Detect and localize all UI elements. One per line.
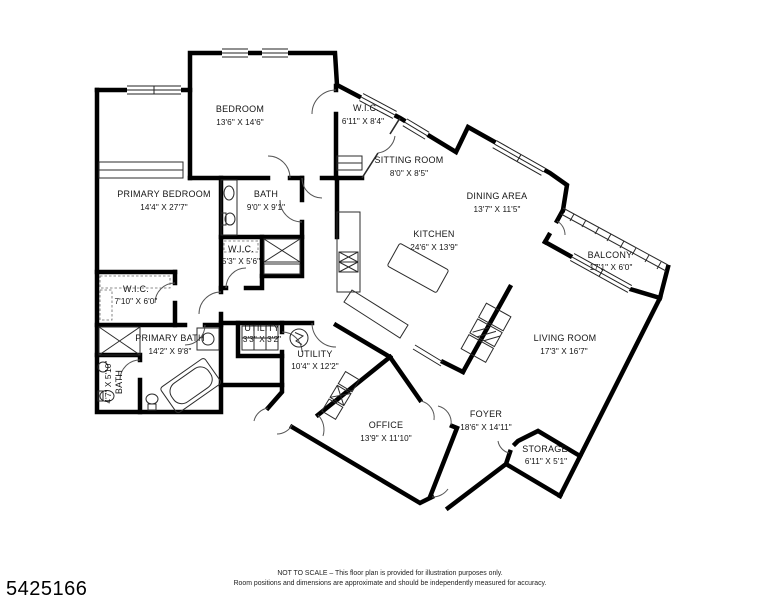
room-dims-wic-primary: 7'10" X 6'0" [115,297,158,306]
room-label-dining-area: DINING AREA [467,191,528,201]
range [339,252,358,272]
room-label-primary-bedroom: PRIMARY BEDROOM [117,189,210,199]
room-dims-living-room: 17'3" X 16'7" [540,347,588,356]
kitchen-counter [344,290,408,338]
bathtub [160,357,222,413]
room-dims-bedroom: 13'6" X 14'6" [216,118,264,127]
room-dims-primary-bedroom: 14'4" X 27'7" [140,203,188,212]
door-arc [312,323,336,347]
room-label-small-bath: BATH [114,370,124,394]
door-arc [268,156,290,178]
door-arc [312,90,336,114]
interior-wall [443,362,463,372]
room-label-wic-bedroom: W.I.C. [353,103,379,113]
door-arc [302,178,322,198]
shower [99,327,140,355]
door-arc [277,425,292,434]
room-label-bath: BATH [254,189,278,199]
water-heater-icon [290,329,308,347]
door-arc [421,401,434,420]
room-dims-utility-closet: 3'3" X 3'2" [243,335,281,344]
interior-wall [336,325,390,357]
room-label-sitting-room: SITTING ROOM [375,155,444,165]
exterior-wall [560,267,668,496]
toilet-tank [148,404,156,410]
room-label-storage: STORAGE [522,444,568,454]
room-dims-storage: 6'11" X 5'1" [525,457,567,466]
footer: 5425166 NOT TO SCALE – This floor plan i… [6,570,546,600]
door-arc [254,408,268,421]
exterior-wall [268,356,282,408]
room-label-bedroom: BEDROOM [216,104,264,114]
window [127,86,181,95]
room-dims-sitting-room: 8'0" X 8'5" [390,169,428,178]
interior-wall [545,210,563,242]
door-arc [226,268,246,288]
room-label-living-room: LIVING ROOM [534,333,597,343]
dresser [99,162,183,178]
room-label-balcony: BALCONY [588,250,633,260]
sink [224,186,234,200]
room-label-wic-hall: W.I.C. [228,244,254,254]
window [413,345,443,366]
disclaimer-line-2: Room positions and dimensions are approx… [234,580,547,587]
room-dims-wic-bedroom: 6'11" X 8'4" [342,117,384,126]
windows [127,49,632,367]
room-label-foyer: FOYER [470,409,503,419]
room-label-utility: UTILITY [297,349,332,359]
room-label-kitchen: KITCHEN [413,229,454,239]
room-dims-balcony: 17'1" X 6'0" [590,263,633,272]
laundry-appliances [322,372,359,420]
room-dims-small-bath: 4'7" X 5'10" [104,361,113,404]
listing-id: 5425166 [6,578,87,600]
room-dims-dining-area: 13'7" X 11'5" [474,205,521,214]
window [492,140,545,175]
room-label-office: OFFICE [369,420,404,430]
closet-shelf [100,290,112,320]
door-arc [155,283,175,303]
shower [264,239,300,274]
room-label-utility-closet: UTILITY [244,323,279,333]
door-arc [199,292,221,314]
door-arc [318,415,324,436]
room-dims-foyer: 18'6" X 14'11" [460,423,512,432]
room-label-primary-bath: PRIMARY BATH [135,333,205,343]
toilet [146,394,158,404]
floor-plan: PRIMARY BEDROOM 14'4" X 27'7" BEDROOM 13… [0,0,779,600]
door-arc [438,406,451,425]
door-arc [498,441,509,453]
window [403,118,430,139]
vanity-counter [221,180,237,235]
room-dims-primary-bath: 14'2" X 9'8" [149,347,192,356]
room-dims-bath: 9'0" X 9'1" [247,203,285,212]
room-dims-kitchen: 24'6" X 13'9" [410,243,458,252]
floor-plan-page: PRIMARY BEDROOM 14'4" X 27'7" BEDROOM 13… [0,0,779,600]
door-arc [378,136,395,153]
exterior-wall [97,53,567,210]
shelf [337,156,362,170]
window [262,49,288,58]
disclaimer-line-1: NOT TO SCALE – This floor plan is provid… [277,570,502,577]
room-dims-wic-hall: 5'3" X 5'6" [222,257,260,266]
interior-wall [463,287,510,372]
room-dims-utility: 10'4" X 12'2" [291,362,339,371]
window [222,49,248,58]
room-dims-office: 13'9" X 11'10" [360,434,412,443]
room-label-wic-primary: W.I.C. [123,284,149,294]
